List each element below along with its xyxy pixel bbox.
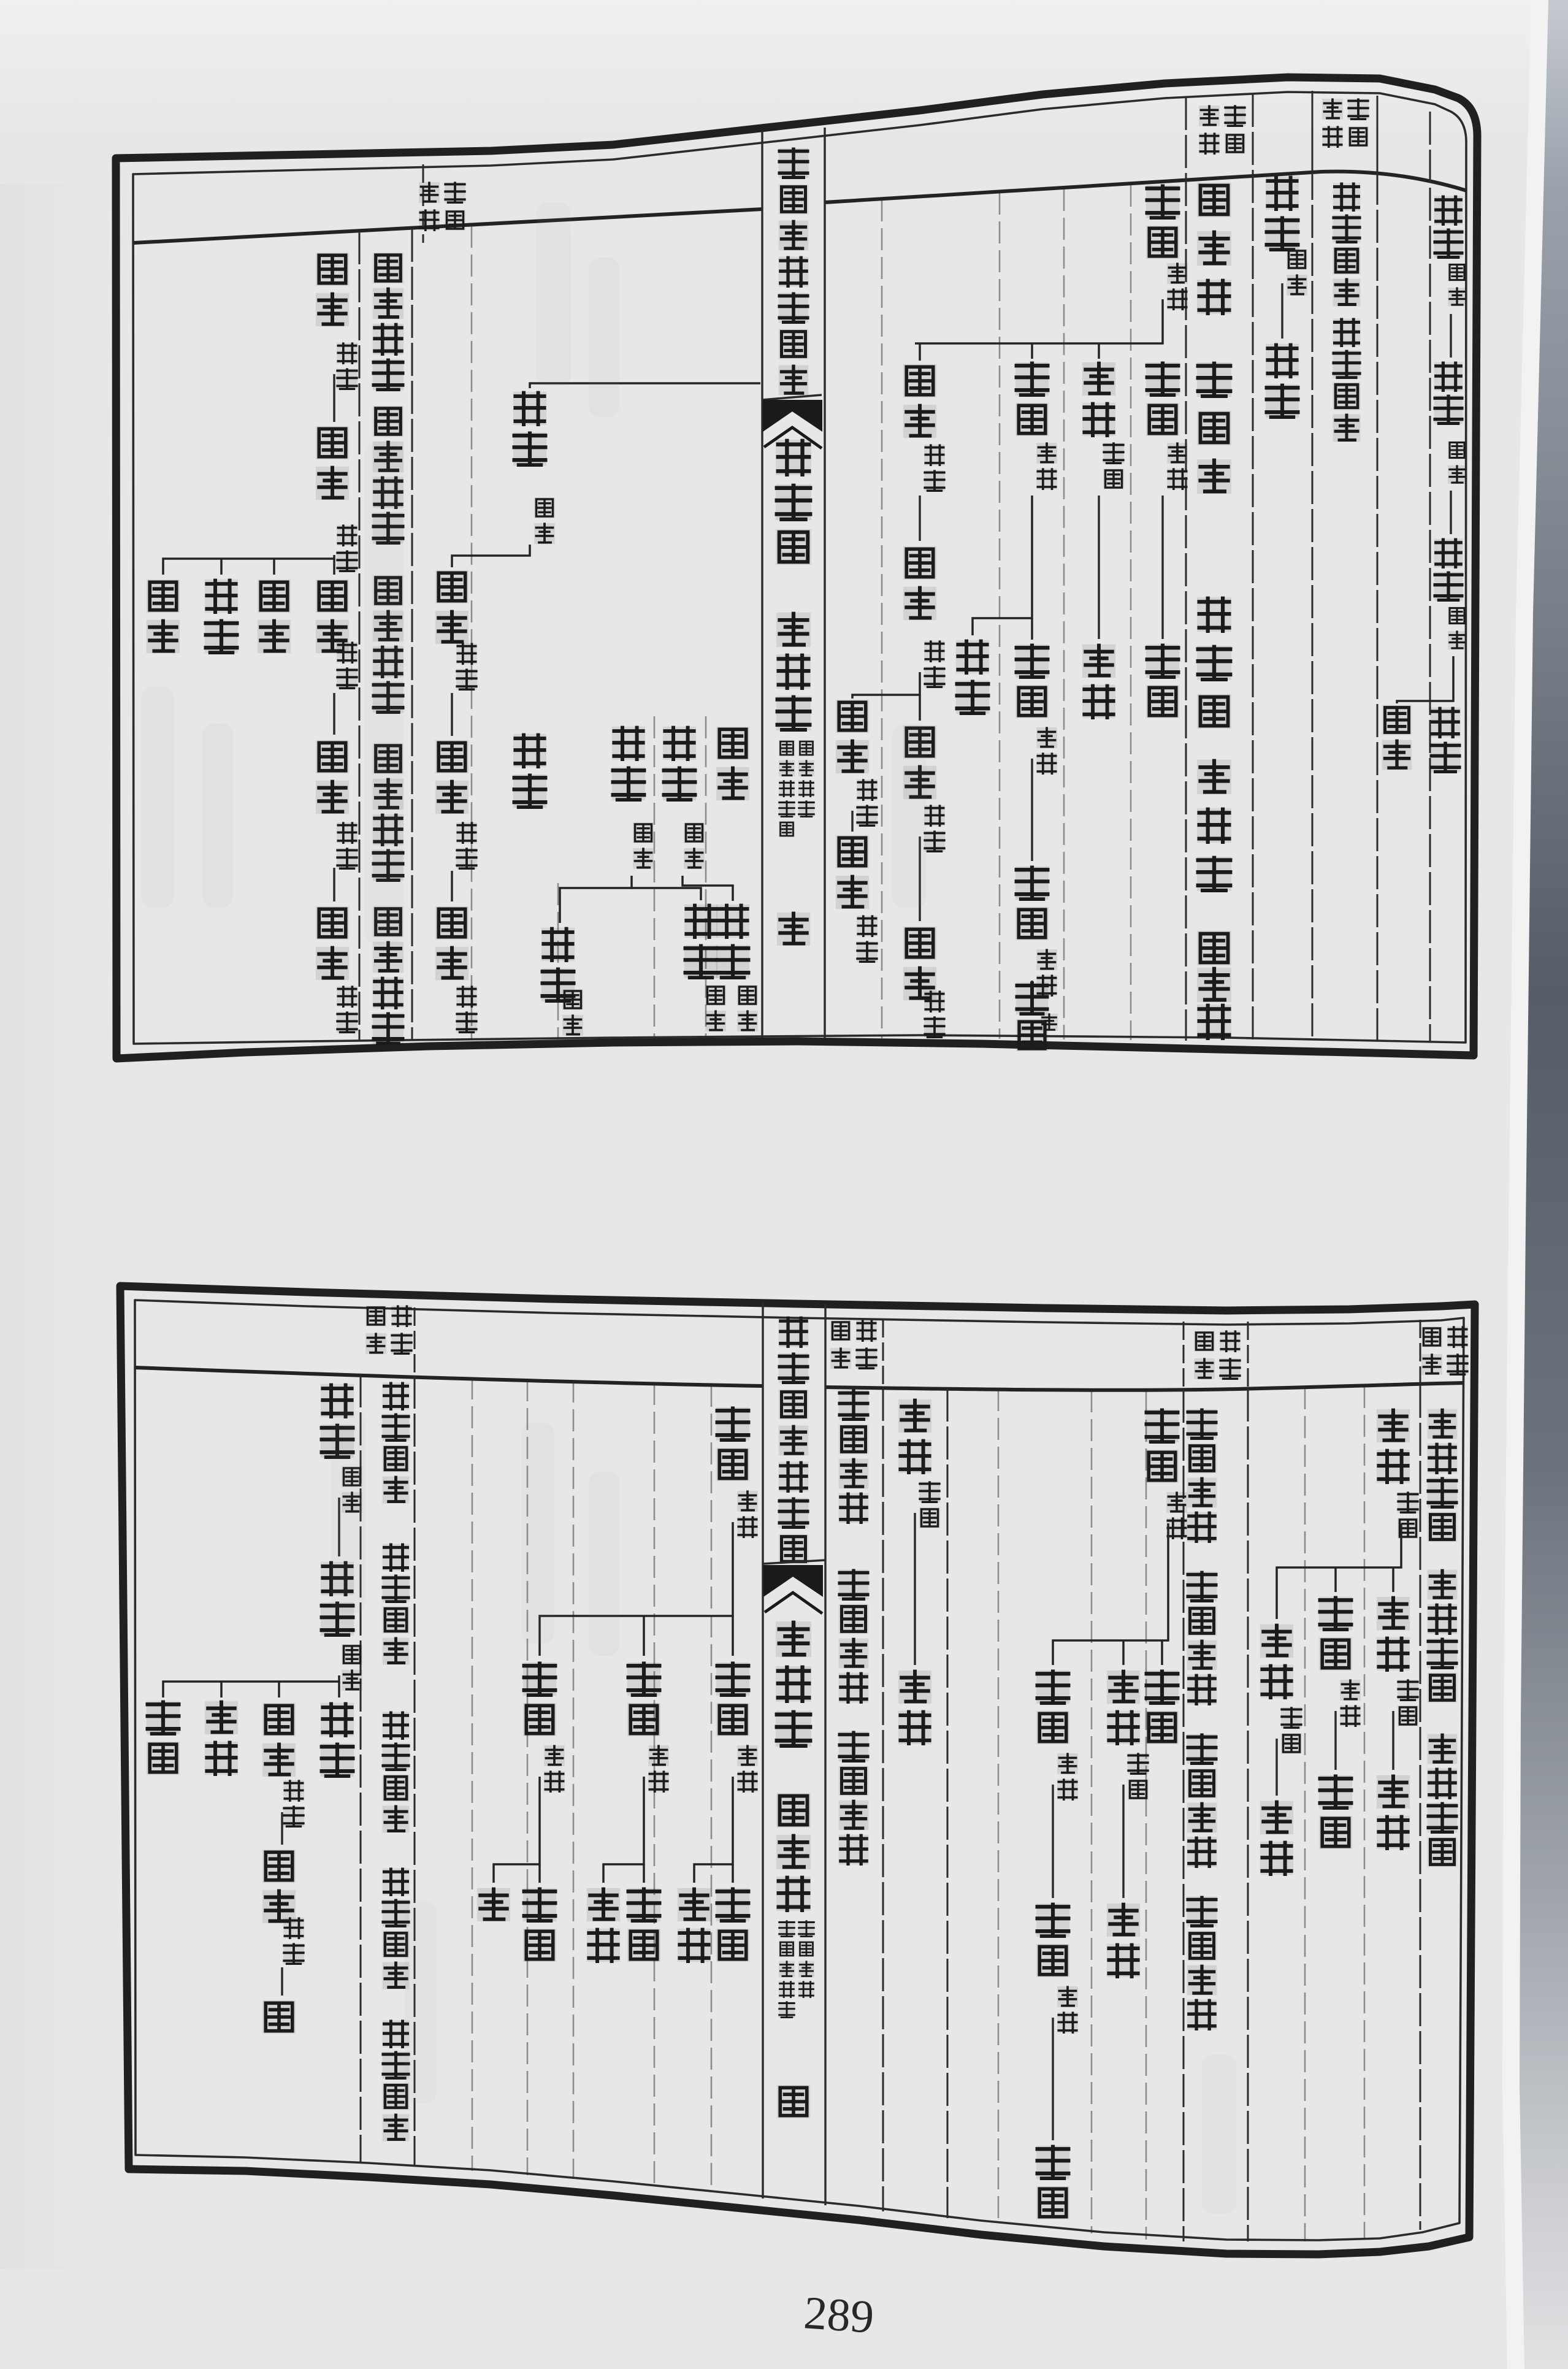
svg-text:289: 289 [802, 2287, 876, 2343]
